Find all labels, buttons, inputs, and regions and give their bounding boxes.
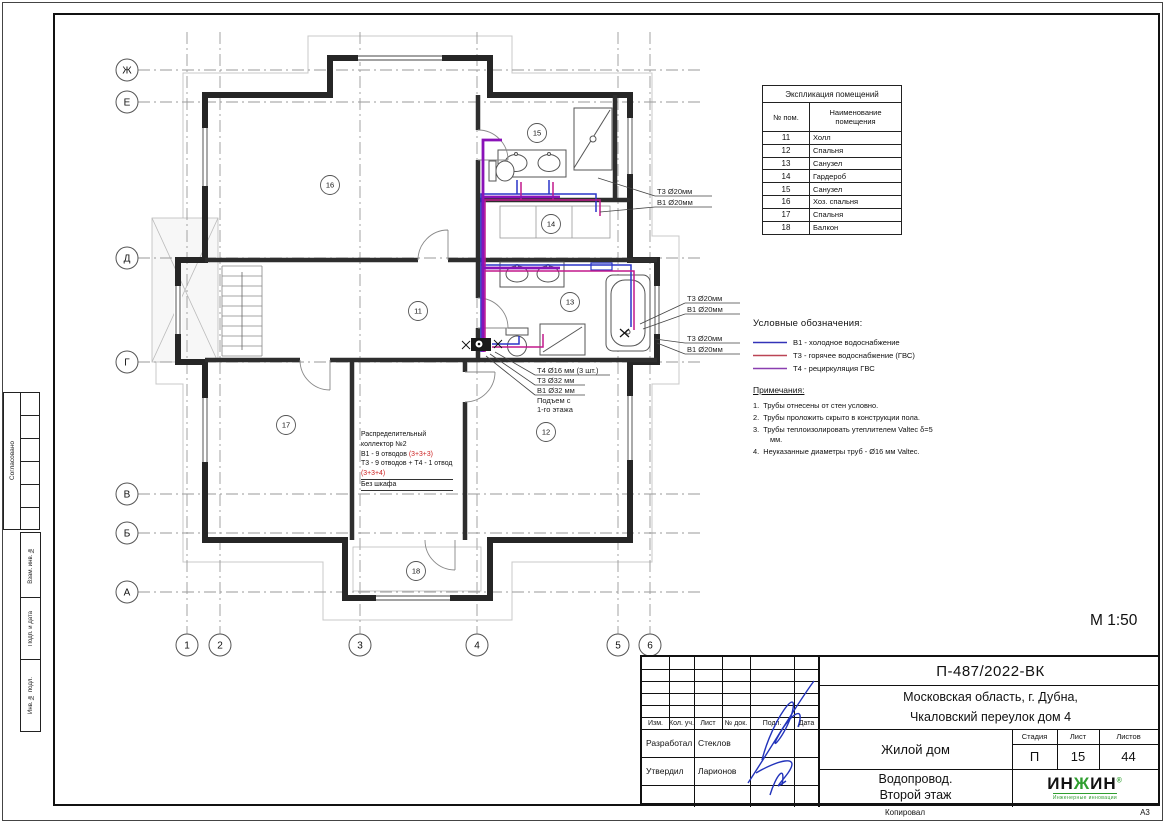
- agreed-row-line: [21, 461, 40, 462]
- logo-part1: ИН: [1047, 774, 1074, 793]
- agreed-row-line: [21, 507, 40, 508]
- drawing-title-line2: Второй этаж: [819, 786, 1012, 804]
- logo-reg-mark: ®: [1117, 777, 1123, 784]
- logo-part3: ИН: [1090, 774, 1117, 793]
- sheet-label: Лист: [1057, 729, 1099, 744]
- agreed-label-cell: Согласовано: [4, 393, 20, 529]
- sheet-number: 15: [1057, 744, 1099, 769]
- agreed-label: Согласовано: [9, 441, 16, 480]
- tb-col-list: Лист: [694, 717, 722, 729]
- tb-col-koluch: Кол. уч.: [669, 717, 694, 729]
- agreed-row-line: [21, 484, 40, 485]
- stage-value: П: [1012, 744, 1057, 769]
- tb-name-approved: Ларионов: [695, 757, 749, 785]
- logo-text: ИНЖИН®: [1047, 775, 1123, 792]
- title-block: Изм. Кол. уч. Лист № док. Подп. Дата Раз…: [640, 655, 1160, 805]
- tb-role-developed: Разработал: [643, 729, 693, 757]
- subst-inv-label: Взам. инв. №: [28, 547, 34, 584]
- stage-label: Стадия: [1012, 729, 1057, 744]
- sheets-total: 44: [1099, 744, 1158, 769]
- signature: [742, 665, 822, 799]
- agreed-row-line: [21, 415, 40, 416]
- subst-inv-stamp: Взам. инв. №: [20, 532, 41, 598]
- inv-number-label: Инв. № подл.: [28, 677, 34, 714]
- company-logo: ИНЖИН® Инженерные инновации: [1012, 769, 1158, 807]
- project-address-line1: Московская область, г. Дубна,: [819, 686, 1162, 707]
- drawing-sheet: Т3 Ø20мм В1 Ø20мм Т3 Ø20мм В1 Ø20мм Т3 Ø…: [0, 0, 1166, 824]
- format-label: А3: [1125, 808, 1165, 817]
- agreed-stamp: Согласовано: [3, 392, 40, 530]
- logo-tagline: Инженерные инновации: [1053, 793, 1117, 801]
- sign-date-label: Подп. и дата: [28, 611, 34, 646]
- agreed-row-line: [21, 438, 40, 439]
- tb-name-developed: Стеклов: [695, 729, 749, 757]
- document-code: П-487/2022-ВК: [819, 657, 1162, 685]
- sheets-label: Листов: [1099, 729, 1158, 744]
- project-address-line2: Чкаловский переулок дом 4: [819, 706, 1162, 727]
- object-name: Жилой дом: [819, 729, 1012, 769]
- sign-date-stamp: Подп. и дата: [20, 597, 41, 660]
- logo-part2: Ж: [1074, 774, 1090, 793]
- tb-role-approved: Утвердил: [643, 757, 693, 785]
- copied-label: Копировал: [855, 808, 955, 817]
- tb-col-izm: Изм.: [642, 717, 669, 729]
- inv-number-stamp: Инв. № подл.: [20, 659, 41, 732]
